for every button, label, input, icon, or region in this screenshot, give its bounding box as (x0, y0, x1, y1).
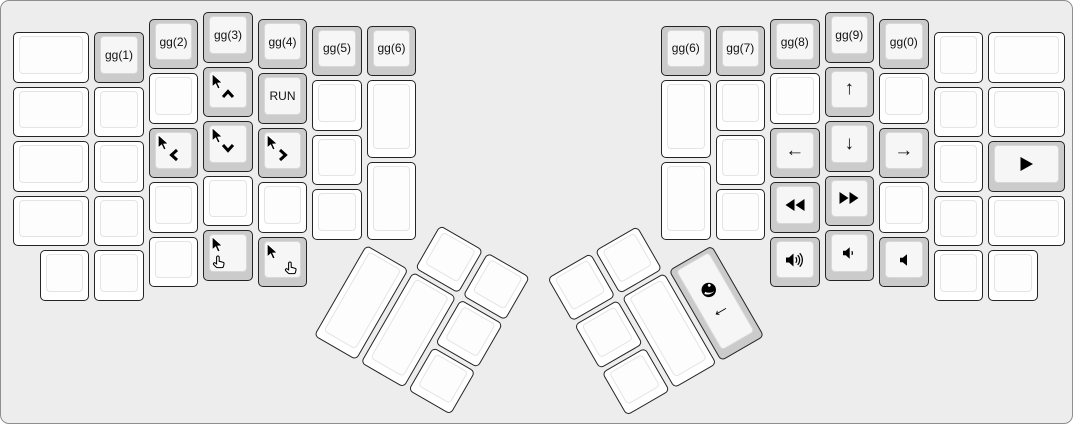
keycap-top (445, 305, 496, 356)
keycap-top (100, 254, 138, 292)
keycap-top (155, 241, 193, 279)
keycap-top (554, 259, 605, 310)
keycap-top (472, 258, 523, 309)
keycap-top: → (885, 132, 923, 170)
key-blank[interactable] (203, 176, 253, 227)
key-blank[interactable] (661, 80, 711, 158)
key-gg-1[interactable]: gg(1) (94, 32, 144, 83)
key-arrow-left[interactable]: ← (770, 128, 820, 179)
keycap-top (209, 125, 247, 163)
key-gg-5[interactable]: gg(5) (312, 26, 362, 77)
key-blank[interactable] (94, 87, 144, 138)
keycap-top: RUN (264, 77, 302, 115)
keycap-top (100, 145, 138, 183)
keycap-top (19, 91, 84, 129)
key-gg-9[interactable]: gg(9) (825, 12, 875, 63)
key-blank[interactable] (770, 73, 820, 124)
keycap-top: gg(2) (155, 23, 193, 61)
keycap-top (155, 186, 193, 224)
keycap-top (581, 306, 632, 357)
keycap-top (318, 139, 356, 177)
fast-forward-icon (838, 191, 861, 206)
key-blank[interactable] (149, 73, 199, 124)
keycap-top (831, 180, 869, 218)
keycap-top (722, 84, 760, 122)
volume-up-icon (784, 251, 805, 268)
key-blank[interactable] (934, 87, 984, 138)
keycap-top: gg(5) (318, 30, 356, 68)
keycap-top (209, 234, 247, 272)
keycap-top (994, 200, 1059, 238)
key-legend: gg(2) (159, 35, 187, 49)
key-blank[interactable] (661, 162, 711, 240)
key-arrow-right[interactable]: → (879, 128, 929, 179)
keycap-top (19, 36, 84, 74)
key-legend: gg(9) (835, 28, 863, 42)
key-blank[interactable] (40, 250, 90, 301)
key-legend: ← (785, 140, 804, 162)
keycap-top (994, 254, 1032, 292)
key-blank[interactable] (94, 250, 144, 301)
key-gg-6-left[interactable]: gg(6) (367, 26, 417, 77)
keycap-top (885, 186, 923, 224)
keycap-top (100, 91, 138, 129)
keycap-top (994, 91, 1059, 129)
keycap-top (940, 145, 978, 183)
keycap-top (609, 353, 660, 404)
keycap-top: ← (776, 132, 814, 170)
volume-down-icon (842, 246, 857, 260)
key-run[interactable]: RUN (258, 73, 308, 124)
key-blank[interactable] (988, 32, 1065, 83)
mouse-cursor-icon (266, 243, 279, 260)
key-blank[interactable] (13, 32, 90, 83)
keycap-top (722, 139, 760, 177)
keycap-top (209, 71, 247, 109)
key-legend: gg(0) (890, 35, 918, 49)
keycap-top (425, 231, 476, 282)
keycap-top: gg(1) (100, 36, 138, 74)
keycap-top (318, 193, 356, 231)
keycap-top (940, 36, 978, 74)
key-mouse-up[interactable] (203, 67, 253, 118)
key-play[interactable] (988, 141, 1065, 192)
keycap-top (264, 132, 302, 170)
keycap-top (418, 352, 469, 403)
keycap-top (776, 77, 814, 115)
key-arrow-down[interactable]: ↓ (825, 121, 875, 172)
key-mouse-right[interactable] (258, 128, 308, 179)
mouse-cursor-icon (211, 73, 224, 90)
key-volume-down[interactable] (825, 230, 875, 281)
keycap-top (373, 84, 411, 149)
chevron-left-icon (168, 147, 179, 162)
key-blank[interactable] (934, 250, 984, 301)
mouse-cursor-icon (211, 236, 224, 253)
key-mouse-button-2[interactable] (258, 237, 308, 288)
key-legend: RUN (270, 89, 296, 103)
key-arrow-up[interactable]: ↑ (825, 67, 875, 118)
keyboard-layout-canvas: gg(1)gg(2)gg(3)gg(4)gg(5)gg(6)RUNgg(6)gg… (0, 0, 1073, 424)
keycap-top (940, 91, 978, 129)
keycap-top: gg(8) (776, 23, 814, 61)
keycap-top (155, 132, 193, 170)
key-blank[interactable] (13, 196, 90, 247)
key-gg-2[interactable]: gg(2) (149, 19, 199, 70)
keycap-top (209, 180, 247, 218)
key-blank[interactable] (258, 182, 308, 233)
keycap-top: gg(6) (667, 30, 705, 68)
keycap-top (667, 84, 705, 149)
key-legend: ↑ (845, 78, 855, 100)
key-blank[interactable] (13, 141, 90, 192)
key-blank[interactable] (94, 141, 144, 192)
key-gg-3[interactable]: gg(3) (203, 12, 253, 63)
key-gg-0[interactable]: gg(0) (879, 19, 929, 70)
keycap-top (19, 200, 84, 238)
key-legend: gg(5) (323, 41, 351, 55)
keycap-top (722, 193, 760, 231)
keycap-top: gg(6) (373, 30, 411, 68)
keycap-top: gg(9) (831, 16, 869, 54)
key-gg-7[interactable]: gg(7) (716, 26, 766, 77)
key-gg-4[interactable]: gg(4) (258, 19, 308, 70)
key-legend: gg(1) (105, 48, 133, 62)
keycap-top (264, 186, 302, 224)
key-mouse-down[interactable] (203, 121, 253, 172)
keycap-top: gg(4) (264, 23, 302, 61)
keycap-top (940, 200, 978, 238)
key-blank[interactable] (149, 237, 199, 288)
key-blank[interactable] (716, 80, 766, 131)
key-gg-6-right[interactable]: gg(6) (661, 26, 711, 77)
keycap-top: ↓ (831, 125, 869, 163)
key-blank[interactable] (879, 182, 929, 233)
key-fast-forward[interactable] (825, 176, 875, 227)
keycap-top (46, 254, 84, 292)
key-blank[interactable] (934, 196, 984, 247)
keycap-top (667, 166, 705, 231)
key-blank[interactable] (149, 182, 199, 233)
keycap-top (601, 232, 652, 283)
keycap-top (100, 200, 138, 238)
volume-mute-icon (898, 253, 910, 267)
key-blank[interactable] (312, 80, 362, 131)
keycap-top: gg(7) (722, 30, 760, 68)
chevron-down-icon (221, 143, 236, 154)
key-blank[interactable] (988, 250, 1038, 301)
key-blank[interactable] (367, 162, 417, 240)
pointing-hand-icon (212, 255, 226, 269)
keycap-top (264, 241, 302, 279)
key-blank[interactable] (312, 135, 362, 186)
key-blank[interactable] (988, 196, 1065, 247)
pointing-hand-icon (284, 261, 298, 275)
keycap-top (19, 145, 84, 183)
keycap-top (831, 234, 869, 272)
key-legend: gg(4) (268, 35, 296, 49)
key-mouse-button-1[interactable] (203, 230, 253, 281)
key-legend: gg(6) (672, 41, 700, 55)
key-blank[interactable] (716, 135, 766, 186)
key-volume-mute[interactable] (879, 237, 929, 288)
key-blank[interactable] (934, 32, 984, 83)
chevron-up-icon (221, 88, 236, 99)
key-blank[interactable] (879, 73, 929, 124)
key-blank[interactable] (988, 87, 1065, 138)
key-blank[interactable] (13, 87, 90, 138)
keycap-top (318, 84, 356, 122)
key-legend: gg(3) (214, 28, 242, 42)
keycap-top (373, 166, 411, 231)
keycap-top: gg(0) (885, 23, 923, 61)
key-legend: ↓ (845, 133, 855, 155)
keycap-top (885, 77, 923, 115)
chevron-right-icon (277, 147, 288, 162)
keycap-top (940, 254, 978, 292)
key-mouse-left[interactable] (149, 128, 199, 179)
key-legend: gg(8) (781, 35, 809, 49)
keycap-top (885, 241, 923, 279)
key-legend: → (894, 140, 913, 162)
key-blank[interactable] (367, 80, 417, 158)
key-legend: gg(7) (726, 41, 754, 55)
key-volume-up[interactable] (770, 237, 820, 288)
keycap-top (994, 36, 1059, 74)
keycap-top (776, 186, 814, 224)
key-blank[interactable] (94, 196, 144, 247)
keycap-top: gg(3) (209, 16, 247, 54)
key-gg-8[interactable]: gg(8) (770, 19, 820, 70)
key-blank[interactable] (716, 189, 766, 240)
keycap-top: ↑ (831, 71, 869, 109)
keycap-top (776, 241, 814, 279)
key-rewind[interactable] (770, 182, 820, 233)
play-icon (1017, 155, 1035, 173)
rewind-icon (783, 198, 806, 213)
keycap-top (155, 77, 193, 115)
key-legend: gg(6) (377, 41, 405, 55)
key-blank[interactable] (934, 141, 984, 192)
keycap-top (994, 145, 1059, 183)
mouse-cursor-icon (211, 127, 224, 144)
key-blank[interactable] (312, 189, 362, 240)
